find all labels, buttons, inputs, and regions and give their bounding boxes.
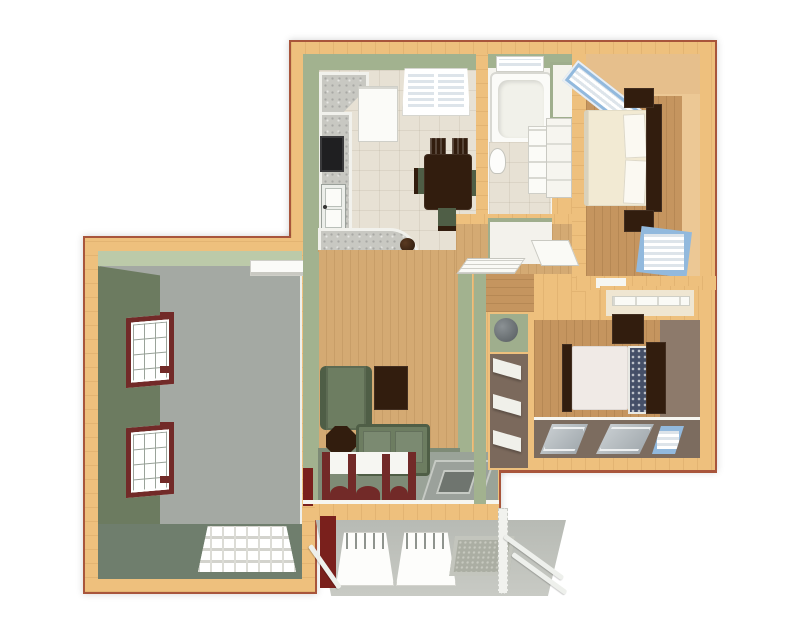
- closet-shelf: [493, 358, 521, 380]
- garage-window-lower: [126, 424, 174, 498]
- louvered-door: [456, 258, 525, 274]
- bed2-headboard: [646, 342, 666, 414]
- window-glass: [408, 74, 434, 110]
- window-glass: [644, 234, 684, 270]
- closet-shelf: [493, 394, 521, 416]
- toilet: [489, 148, 506, 174]
- garage-door: [198, 526, 296, 572]
- bed2-duvet: [572, 346, 628, 410]
- media-cabinet: [374, 366, 408, 410]
- window-glass: [131, 429, 169, 492]
- dining-table: [424, 154, 472, 210]
- garage-window-lower-sill: [160, 422, 174, 429]
- kitchen-window: [402, 68, 470, 116]
- bedroom2-sill-line: [534, 417, 700, 420]
- living-left-wall: [303, 252, 319, 504]
- garage-window-upper: [126, 314, 174, 388]
- hall-vertical-floor: [486, 274, 534, 312]
- bed2-dresser: [612, 314, 644, 344]
- refrigerator: [358, 86, 398, 142]
- window-post: [382, 454, 390, 500]
- range-cooktop: [320, 136, 344, 172]
- bed2-footboard: [562, 344, 572, 412]
- linen-cabinet: [546, 118, 572, 198]
- door-inset: [436, 470, 478, 494]
- octagon-side-table: [326, 426, 356, 456]
- living-bottom-sill: [303, 500, 499, 504]
- louvered-utility-closet: [488, 352, 530, 470]
- bedroom1-lower-window: [636, 226, 692, 278]
- porch-corner-post: [498, 508, 508, 594]
- hall-green-wall: [474, 274, 486, 504]
- window-glass: [438, 74, 464, 110]
- rail-pickets: [397, 533, 455, 549]
- porch-rail-panel-center: [396, 532, 456, 586]
- floorplan-canvas: [0, 0, 800, 639]
- bed1-pillow: [623, 159, 647, 204]
- kitchen-left-wall: [303, 70, 319, 252]
- window-glass: [499, 59, 541, 69]
- bedroom2-bottom-edge: [500, 470, 717, 473]
- garage-shelf: [250, 260, 304, 276]
- bed1-nightstand-top: [624, 88, 654, 108]
- bath-window: [496, 56, 544, 72]
- sofa: [320, 366, 372, 430]
- garage-window-upper-sill: [160, 312, 174, 319]
- sink-faucet: [323, 205, 327, 209]
- window-post: [322, 452, 330, 500]
- living-right-wall: [458, 252, 472, 464]
- garage-window-lower-sill2: [160, 476, 174, 483]
- water-heater: [494, 318, 518, 342]
- kitchen-top-wall: [303, 54, 479, 70]
- porch-rail-panel-left: [336, 532, 394, 586]
- living-window-sill: [322, 452, 416, 474]
- sink-basin: [325, 209, 342, 228]
- sink-basin: [325, 188, 342, 207]
- bed1-pillow: [623, 113, 647, 158]
- window-glass: [657, 431, 679, 449]
- kitchen-sink: [321, 184, 346, 232]
- window-post: [408, 452, 416, 500]
- window-glass: [131, 319, 169, 382]
- closet-shelf: [493, 430, 521, 452]
- utility-closet: [488, 312, 530, 354]
- rail-pickets: [337, 533, 393, 549]
- bed1-headboard: [646, 104, 662, 212]
- dining-chair-bottom: [438, 208, 456, 231]
- garage-window-upper-sill2: [160, 366, 174, 373]
- closet-rod-shelf: [612, 296, 690, 306]
